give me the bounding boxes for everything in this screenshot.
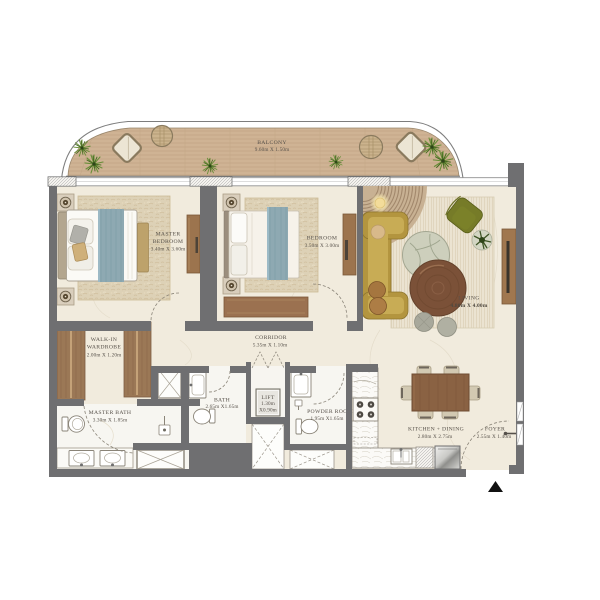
svg-text:1.30m: 1.30m bbox=[261, 401, 275, 407]
svg-text:9.60m X 1.50m: 9.60m X 1.50m bbox=[255, 147, 290, 153]
svg-text:BEDROOM: BEDROOM bbox=[307, 236, 338, 242]
svg-text:3.40m X 3.60m: 3.40m X 3.60m bbox=[151, 247, 186, 253]
svg-text:BATH: BATH bbox=[214, 398, 230, 404]
svg-text:BEDROOM: BEDROOM bbox=[153, 239, 184, 245]
svg-text:4.80m X 4.00m: 4.80m X 4.00m bbox=[450, 303, 487, 309]
svg-text:KITCHEN + DINING: KITCHEN + DINING bbox=[408, 427, 464, 433]
svg-text:3.50m X 3.00m: 3.50m X 3.00m bbox=[305, 243, 340, 249]
svg-text:WARDROBE: WARDROBE bbox=[87, 345, 122, 351]
svg-text:5.35m X 1.10m: 5.35m X 1.10m bbox=[253, 343, 288, 349]
svg-text:X0.90m: X0.90m bbox=[259, 408, 277, 414]
svg-text:FOYER: FOYER bbox=[485, 427, 505, 433]
svg-text:2.65m X1.65m: 2.65m X1.65m bbox=[205, 404, 238, 410]
svg-text:2.00m X 1.20m: 2.00m X 1.20m bbox=[87, 353, 122, 359]
svg-text:2.80m X 2.75m: 2.80m X 2.75m bbox=[418, 434, 453, 440]
svg-text:CORRIDOR: CORRIDOR bbox=[255, 335, 287, 341]
svg-text:BALCONY: BALCONY bbox=[257, 140, 287, 146]
svg-text:MASTER: MASTER bbox=[156, 232, 181, 238]
svg-text:MASTER BATH: MASTER BATH bbox=[89, 410, 132, 416]
svg-text:1.95m X1.65m: 1.95m X1.65m bbox=[310, 416, 343, 422]
svg-text:WALK-IN: WALK-IN bbox=[91, 337, 117, 343]
svg-text:LIVING: LIVING bbox=[458, 296, 479, 302]
svg-text:3.30m X 1.85m: 3.30m X 1.85m bbox=[93, 418, 128, 424]
